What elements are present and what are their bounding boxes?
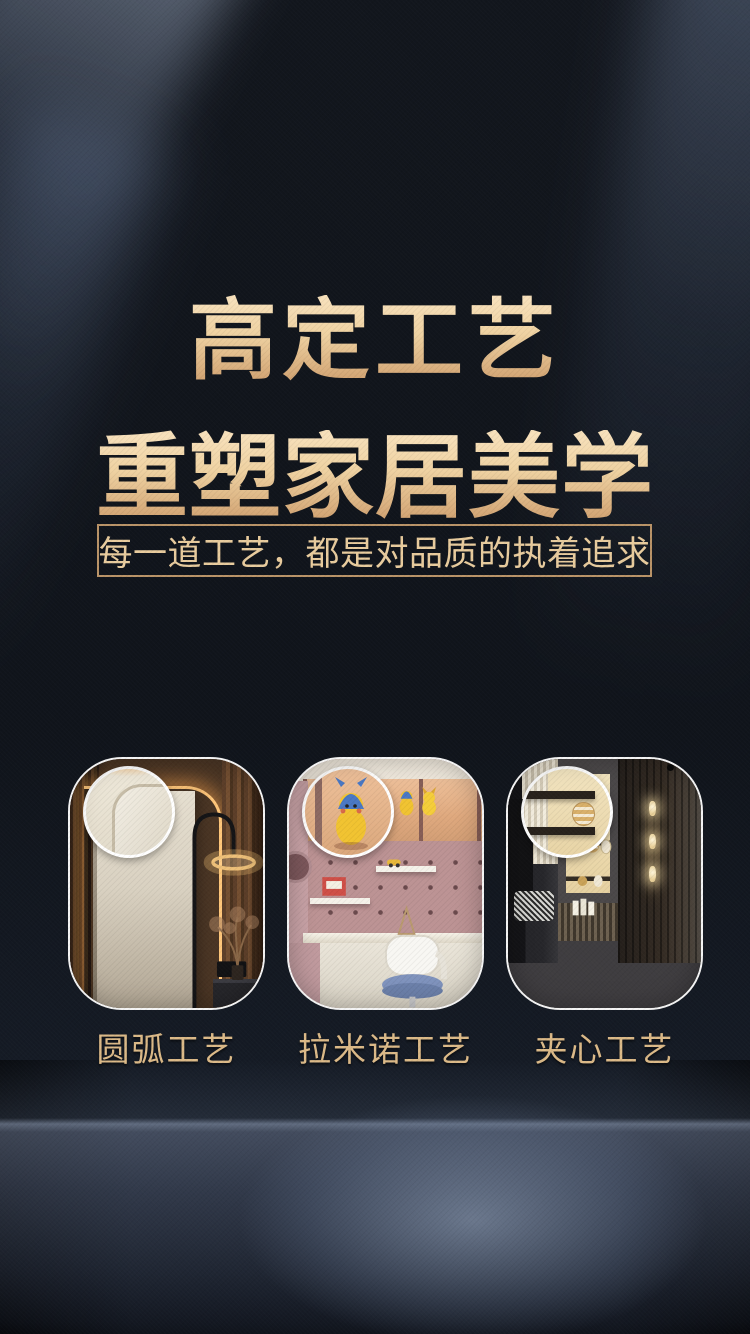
craft-card-lamello[interactable]: 拉米诺工艺: [287, 757, 484, 1071]
craft-label-lamello: 拉米诺工艺: [298, 1023, 473, 1071]
craft-label-arc: 圆弧工艺: [97, 1023, 237, 1071]
craft-photo-sandwich: [506, 757, 703, 1010]
subtitle-banner: 每一道工艺，都是对品质的执着追求: [97, 524, 652, 577]
craft-cards-row: 圆弧工艺: [68, 757, 703, 1071]
craft-card-sandwich[interactable]: 夹心工艺: [506, 757, 703, 1071]
craft-photo-lamello: [287, 757, 484, 1010]
main-title-line1: 高定工艺: [0, 295, 750, 387]
subtitle-text: 每一道工艺，都是对品质的执着追求: [99, 526, 651, 575]
background-base: [0, 0, 750, 1334]
photo-vignette: [70, 759, 263, 1008]
craft-photo-arc: [68, 757, 265, 1010]
photo-vignette: [508, 759, 701, 1008]
main-title-line2: 重塑家居美学: [0, 430, 750, 527]
craft-card-arc[interactable]: 圆弧工艺: [68, 757, 265, 1071]
craft-label-sandwich: 夹心工艺: [535, 1023, 675, 1071]
poster-page: 高定工艺 重塑家居美学 每一道工艺，都是对品质的执着追求: [0, 0, 750, 1334]
photo-vignette: [289, 759, 482, 1008]
